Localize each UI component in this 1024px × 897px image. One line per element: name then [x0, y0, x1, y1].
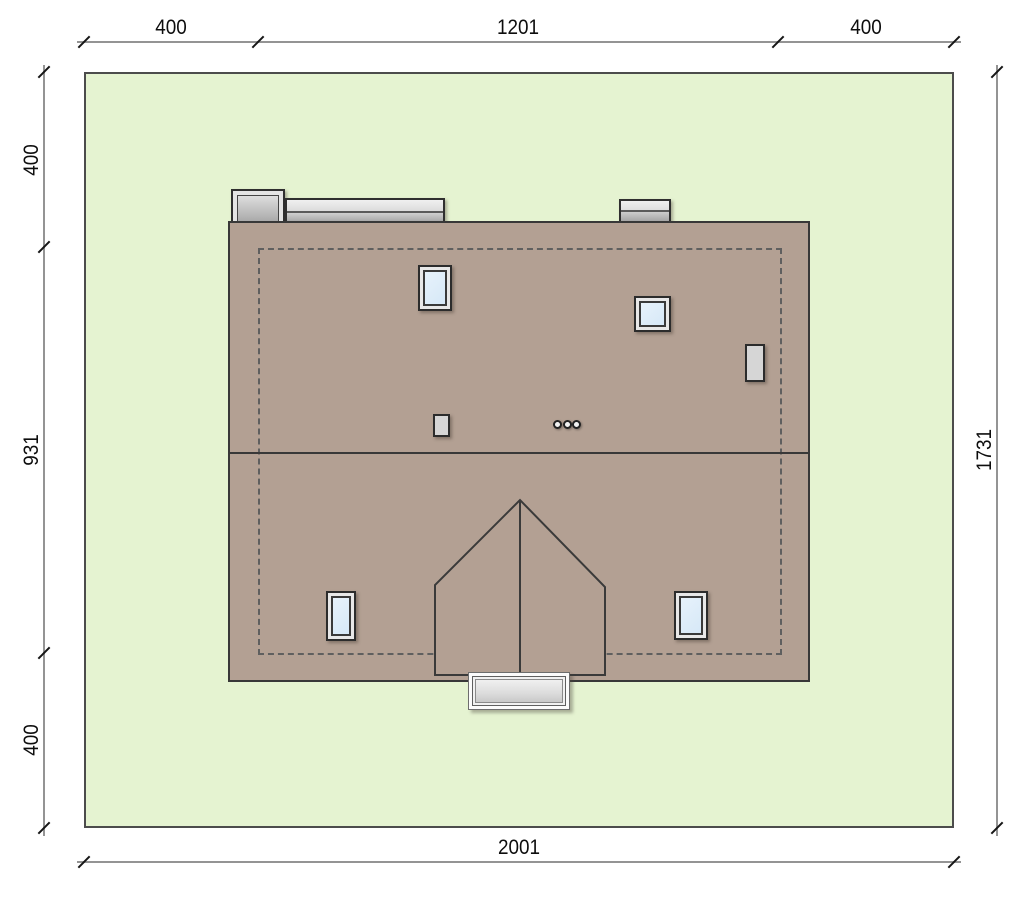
roof-window-4: [674, 591, 708, 640]
dim-label: 1731: [974, 429, 996, 471]
roof-window-3-glass: [331, 596, 351, 636]
roof-vent-strip: [285, 198, 445, 223]
roof-vent-strip-band: [287, 211, 443, 221]
entrance-steps: [468, 672, 570, 710]
chimney-left: [231, 189, 285, 223]
chimney-left-flue: [237, 195, 279, 222]
roof-window-4-glass: [679, 596, 703, 635]
vent-pipe-1: [553, 420, 562, 429]
dim-label: 400: [850, 17, 882, 39]
dim-label: 931: [21, 434, 43, 466]
vent-pipe-3: [572, 420, 581, 429]
dim-label: 1201: [497, 17, 539, 39]
dim-label: 400: [21, 724, 43, 756]
roof-window-1-glass: [423, 270, 447, 306]
roof-vent-right: [745, 344, 765, 382]
dim-label: 400: [21, 144, 43, 176]
chimney-right-band: [621, 210, 669, 221]
roof-vent-small: [433, 414, 450, 437]
dim-label: 2001: [498, 837, 540, 859]
chimney-right: [619, 199, 671, 223]
porch-gable-roof: [430, 495, 610, 685]
entrance-steps-tread: [475, 679, 563, 703]
dim-line: [43, 65, 45, 836]
dim-line: [996, 65, 998, 836]
dim-label: 400: [155, 17, 187, 39]
roof-window-3: [326, 591, 356, 641]
dim-line: [77, 861, 961, 863]
roof-window-2: [634, 296, 671, 332]
dim-line: [77, 41, 961, 43]
roof-window-2-glass: [639, 301, 666, 327]
roof-ridge-line: [230, 452, 808, 454]
roof-window-1: [418, 265, 452, 311]
site-plan-canvas: 400 1201 400 2001 400 931 400 1731: [0, 0, 1024, 897]
roof-outline: [228, 221, 810, 682]
vent-pipe-2: [563, 420, 572, 429]
entrance-steps-frame: [472, 676, 566, 706]
